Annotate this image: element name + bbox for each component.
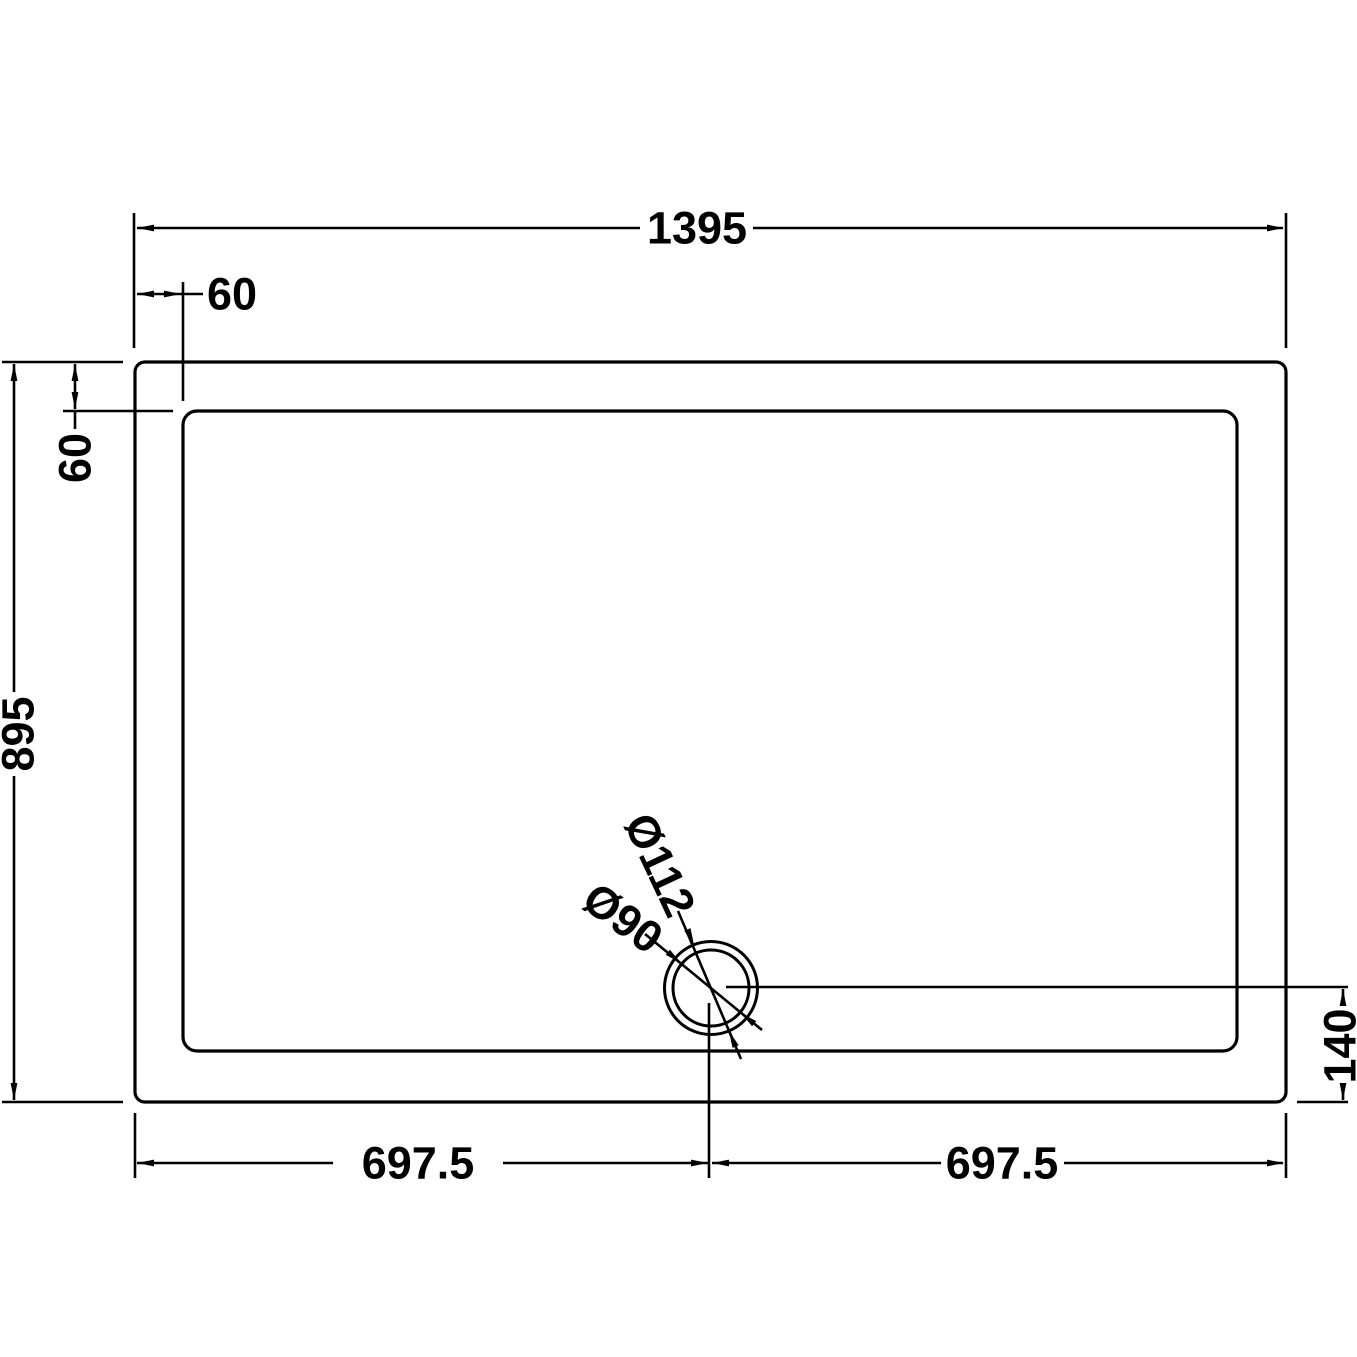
extension-lines [2,213,1348,1178]
dim-left-offset-label: 60 [53,433,98,483]
dim-bottom-right-half-label: 697.5 [946,1141,1059,1186]
dim-drain-from-bottom-label: 140 [1318,1008,1357,1083]
tray-outer-outline [135,362,1286,1102]
dimension-arrowheads [11,225,1347,1167]
dim-overall-depth-label: 895 [0,696,41,771]
technical-drawing-canvas: 1395 60 60 895 140 697.5 697.5 Ø112 Ø90 [0,0,1357,1357]
dim-bottom-left-half-label: 697.5 [362,1141,475,1186]
dim-overall-width-label: 1395 [647,206,747,251]
dim-top-offset-label: 60 [207,272,257,317]
tray-inner-outline [183,411,1237,1051]
